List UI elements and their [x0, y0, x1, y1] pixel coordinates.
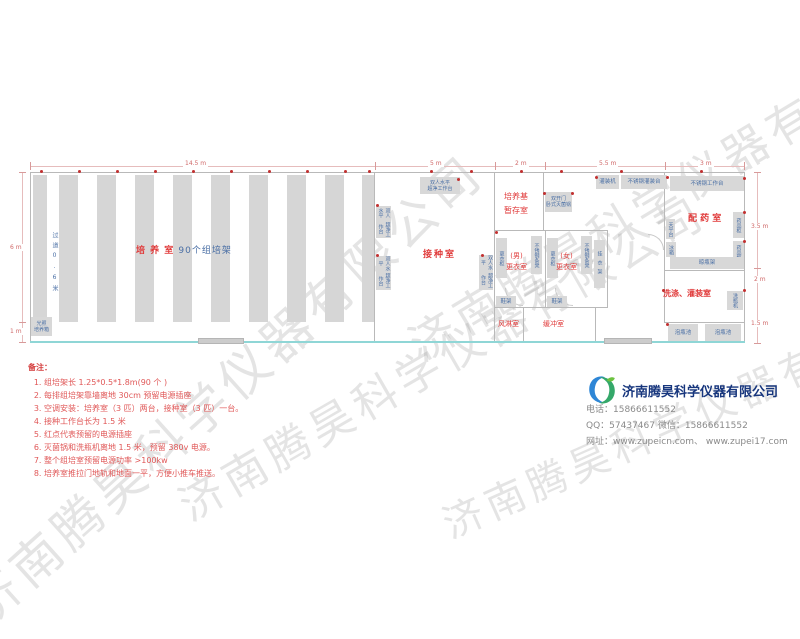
- dim-left-1: 6 m: [8, 244, 24, 251]
- aisle-label: 过道0.6米: [50, 232, 59, 312]
- clean-bench-right: 双人水平超净工作台: [479, 255, 493, 290]
- medicine-cabinet-1: 药品柜: [733, 212, 744, 238]
- filling-table: 不锈钢灌装台: [621, 175, 667, 189]
- power-outlet-dot: [571, 192, 574, 195]
- wall-airshower-buffer: [523, 307, 524, 342]
- wall-mens-womens: [545, 230, 546, 308]
- wall-storage-right: [543, 172, 544, 230]
- dimension-tick: [19, 342, 26, 343]
- coat-rack: 挂衣架: [594, 240, 605, 288]
- culture-rack: [59, 175, 78, 322]
- sliding-door-left: [198, 338, 244, 344]
- sterilizer-label-2: 卧式灭菌锅: [546, 202, 571, 208]
- womens-room-label: (女) 更衣室: [556, 251, 577, 273]
- buffer-room-label: 缓冲室: [543, 319, 564, 329]
- dimension-line-top: [30, 166, 745, 167]
- womens-shoe-rack: 鞋架: [547, 296, 567, 307]
- power-outlet-dot: [470, 170, 473, 173]
- dimension-tick: [744, 162, 745, 170]
- culture-rack: [249, 175, 268, 322]
- company-qq-wechat: QQ：57437467 微信：15866611552: [586, 418, 788, 434]
- power-outlet-dot: [743, 289, 746, 292]
- mens-bench: 不锈钢条凳: [531, 236, 542, 274]
- culture-rack: [97, 175, 116, 322]
- inoculation-room-label: 接种室: [423, 247, 456, 260]
- dim-top-5: 3 m: [698, 160, 714, 167]
- wall-washing-bottom: [664, 322, 745, 323]
- power-outlet-dot: [268, 170, 271, 173]
- dimension-tick: [19, 172, 26, 173]
- wall-culture-inoculation: [374, 172, 375, 343]
- washing-room-label: 洗涤、灌装室: [663, 288, 711, 299]
- wall-changing-bottom: [494, 307, 608, 308]
- bottle-washer: 洗瓶机: [727, 291, 743, 310]
- dimension-tick: [30, 162, 31, 170]
- power-outlet-dot: [192, 170, 195, 173]
- dimension-tick: [545, 162, 546, 170]
- culture-rack: [325, 175, 344, 322]
- mens-room-label: (男) 更衣室: [506, 251, 527, 273]
- power-outlet-dot: [700, 170, 703, 173]
- dim-top-2: 5 m: [428, 160, 444, 167]
- door-arc-pharmacy: [648, 234, 664, 250]
- balance-table: 天平台: [666, 219, 675, 239]
- dimension-tick: [375, 162, 376, 170]
- clean-bench-label-2: 超净工作台: [427, 186, 452, 192]
- note-item: 空调安装：培养室（3 匹）两台，接种室（3 匹）一台。: [44, 402, 358, 415]
- note-item: 培养室推拉门地轨和地面一平，方便小推车推送。: [44, 467, 358, 480]
- clean-bench-label-1: 双人水平: [377, 206, 391, 220]
- power-outlet-dot: [543, 192, 546, 195]
- dim-top-4: 5.5 m: [597, 160, 618, 167]
- dimension-line-right: [757, 172, 758, 344]
- mens-shoe-rack: 鞋架: [496, 296, 516, 307]
- dim-top-1: 14.5 m: [183, 160, 208, 167]
- power-outlet-dot: [78, 170, 81, 173]
- dim-left-2: 1 m: [8, 328, 24, 335]
- wall-changing-top: [494, 230, 608, 231]
- power-outlet-dot: [560, 170, 563, 173]
- wall-right: [744, 172, 745, 343]
- culture-rack: [362, 175, 374, 322]
- notes-block: 备注： 组培架长 1.25*0.5*1.8m(90 个 )每排组培架靠墙离地 3…: [28, 362, 358, 480]
- floorplan-page: { "watermark": "济南腾昊科学仪器有限公司", "plan": {…: [0, 0, 800, 600]
- dimension-tick: [665, 162, 666, 170]
- culture-rack-count-label: 90个组培架: [178, 246, 231, 256]
- wall-buffer-right: [595, 307, 596, 342]
- dimension-tick: [754, 172, 761, 173]
- womens-bench: 不锈钢条凳: [581, 236, 592, 274]
- power-outlet-dot: [743, 240, 746, 243]
- power-outlet-dot: [595, 176, 598, 179]
- power-outlet-dot: [376, 254, 379, 257]
- note-item: 红点代表预留的电源插座: [44, 428, 358, 441]
- wall-top: [30, 172, 745, 173]
- note-item: 接种工作台长为 1.5 米: [44, 415, 358, 428]
- wall-womens-right: [607, 230, 608, 308]
- pharmacy-room-label: 配 药 室: [688, 211, 721, 224]
- clean-bench-left-1: 双人水平超净工作台: [376, 206, 391, 238]
- power-outlet-dot: [666, 176, 669, 179]
- note-item: 整个组培室预留电源功率 >100kw: [44, 454, 358, 467]
- dimension-tick: [495, 162, 496, 170]
- sterilizer: 双开门卧式灭菌锅: [545, 192, 572, 212]
- fridge: 冰箱: [666, 242, 676, 257]
- power-outlet-dot: [116, 170, 119, 173]
- clean-bench-top: 双人水平超净工作台: [420, 177, 460, 194]
- power-outlet-dot: [430, 170, 433, 173]
- incubator-label-1: 光照: [34, 321, 49, 327]
- soaking-pool-1: 泡瓶池: [668, 324, 698, 341]
- stainless-worktable: 不锈钢工作台: [670, 176, 744, 191]
- bottle-drying-rack: 晾瓶架: [670, 257, 744, 269]
- power-outlet-dot: [230, 170, 233, 173]
- dim-right-2: 2 m: [752, 276, 768, 283]
- note-item: 每排组培架靠墙离地 30cm 预留电源插座: [44, 389, 358, 402]
- filling-machine: 灌装机: [596, 175, 619, 189]
- clean-bench-label-2: 超净工作台: [377, 271, 391, 290]
- power-outlet-dot: [154, 170, 157, 173]
- notes-list: 组培架长 1.25*0.5*1.8m(90 个 )每排组培架靠墙离地 30cm …: [28, 376, 358, 480]
- dim-top-3: 2 m: [513, 160, 529, 167]
- clean-bench-label-1: 双人水平: [377, 256, 391, 271]
- power-outlet-dot: [520, 170, 523, 173]
- power-outlet-dot: [495, 231, 498, 234]
- clean-bench-label-2: 超净工作台: [377, 220, 391, 238]
- clean-bench-label-1: 双人水平: [427, 180, 452, 186]
- clean-bench-left-2: 双人水平超净工作台: [376, 256, 391, 290]
- clean-bench-label-1: 双人水平: [479, 255, 493, 271]
- dimension-tick: [754, 268, 761, 269]
- power-outlet-dot: [344, 170, 347, 173]
- company-website: 网址：www.zupeicn.com、 www.zupei17.com: [586, 434, 788, 450]
- dim-right-3: 1.5 m: [749, 320, 770, 327]
- light-incubator: 光照培养箱: [31, 317, 52, 336]
- power-outlet-dot: [481, 254, 484, 257]
- power-outlet-dot: [457, 178, 460, 181]
- clean-bench-label-2: 超净工作台: [479, 271, 493, 290]
- power-outlet-dot: [40, 170, 43, 173]
- womens-label-1: (女): [556, 251, 577, 262]
- power-outlet-dot: [368, 170, 371, 173]
- dimension-line-left: [22, 172, 23, 343]
- company-contact: 电话：15866611552 QQ：57437467 微信：1586661155…: [586, 402, 788, 450]
- sliding-door-right: [604, 338, 652, 344]
- note-item: 组培架长 1.25*0.5*1.8m(90 个 ): [44, 376, 358, 389]
- womens-label-2: 更衣室: [556, 262, 577, 273]
- culture-room-name: 培 养 室: [136, 246, 174, 256]
- medium-storage-label: 培养基暂存室: [501, 190, 531, 218]
- notes-title: 备注：: [28, 362, 358, 373]
- wall-pharmacy-left: [664, 172, 665, 322]
- power-outlet-dot: [620, 170, 623, 173]
- power-outlet-dot: [743, 211, 746, 214]
- wall-pharmacy-bottom: [664, 270, 745, 271]
- soaking-pool-2: 泡瓶池: [705, 324, 741, 341]
- air-shower-label: 风淋室: [498, 319, 519, 329]
- power-outlet-dot: [662, 289, 665, 292]
- culture-rack: [287, 175, 306, 322]
- note-item: 灭菌锅和洗瓶机离地 1.5 米，预留 380v 电源。: [44, 441, 358, 454]
- watermark-text: 济南腾昊科学仪器有限公司: [165, 178, 717, 533]
- company-phone: 电话：15866611552: [586, 402, 788, 418]
- dimension-tick: [754, 343, 761, 344]
- mens-label-1: (男): [506, 251, 527, 262]
- power-outlet-dot: [376, 204, 379, 207]
- company-name: 济南腾昊科学仪器有限公司: [622, 381, 778, 400]
- culture-rack: [33, 175, 47, 322]
- incubator-label-2: 培养箱: [34, 327, 49, 333]
- power-outlet-dot: [666, 323, 669, 326]
- dimension-tick: [19, 322, 26, 323]
- wall-inoculation-right: [494, 172, 495, 343]
- power-outlet-dot: [306, 170, 309, 173]
- mens-label-2: 更衣室: [506, 262, 527, 273]
- culture-room-label: 培 养 室 90个组培架: [136, 243, 232, 256]
- dim-right-1: 3.5 m: [749, 223, 770, 230]
- power-outlet-dot: [743, 177, 746, 180]
